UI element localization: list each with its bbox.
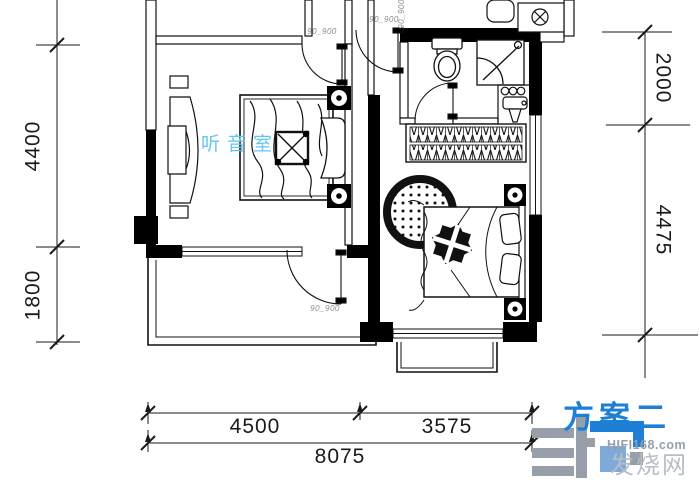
tv-cabinet-icon: [168, 76, 198, 218]
speaker-icon: [504, 184, 526, 206]
wardrobe-icon: [406, 124, 526, 162]
speaker-icon: [327, 86, 351, 110]
dim-left-1800: 1800: [22, 270, 45, 321]
bay-window-outline: [397, 342, 497, 372]
pillow-icon: [499, 213, 522, 245]
door-size-label: 90_900: [307, 27, 337, 36]
dim-left-4400: 4400: [22, 121, 45, 172]
door-size-label: 90_900: [369, 15, 399, 24]
kitchen-counter: [487, 0, 564, 32]
speaker-icon: [504, 298, 526, 320]
door-arc: [415, 83, 453, 121]
site-domain: HIFI168.com: [607, 438, 686, 452]
pillow-icon: [499, 253, 522, 285]
door-arc: [356, 30, 398, 72]
door-size-label: 90_900: [397, 0, 406, 29]
bed-icon: [408, 201, 525, 311]
plan-title: 方案二: [563, 400, 671, 435]
tv-icon: [168, 126, 186, 174]
site-logo: 方案二 HIFI168.com 发烧网: [532, 400, 688, 479]
door-arc: [302, 44, 342, 84]
shower-icon: [477, 40, 524, 85]
floorplan-page: 4400 1800 2000 4475 4500 3575 8075: [0, 0, 700, 485]
site-name: 发烧网: [610, 452, 688, 479]
toilet-icon: [432, 38, 462, 81]
dim-bottom-3575: 3575: [422, 415, 473, 438]
dim-right-2000: 2000: [651, 53, 674, 104]
dim-bottom-4500: 4500: [230, 415, 281, 438]
door-size-label: 90_900: [310, 304, 340, 313]
dim-bottom-8075: 8075: [315, 445, 366, 468]
door-arc: [287, 250, 341, 304]
room-label: 听音室: [201, 133, 279, 155]
dim-right-4475: 4475: [651, 205, 674, 256]
floorplan-drawing: 4400 1800 2000 4475 4500 3575 8075: [0, 0, 700, 485]
chair-icon: [487, 0, 514, 22]
speaker-icon: [327, 184, 351, 208]
sink-icon: [498, 85, 529, 122]
coffee-table-icon: [275, 131, 309, 165]
